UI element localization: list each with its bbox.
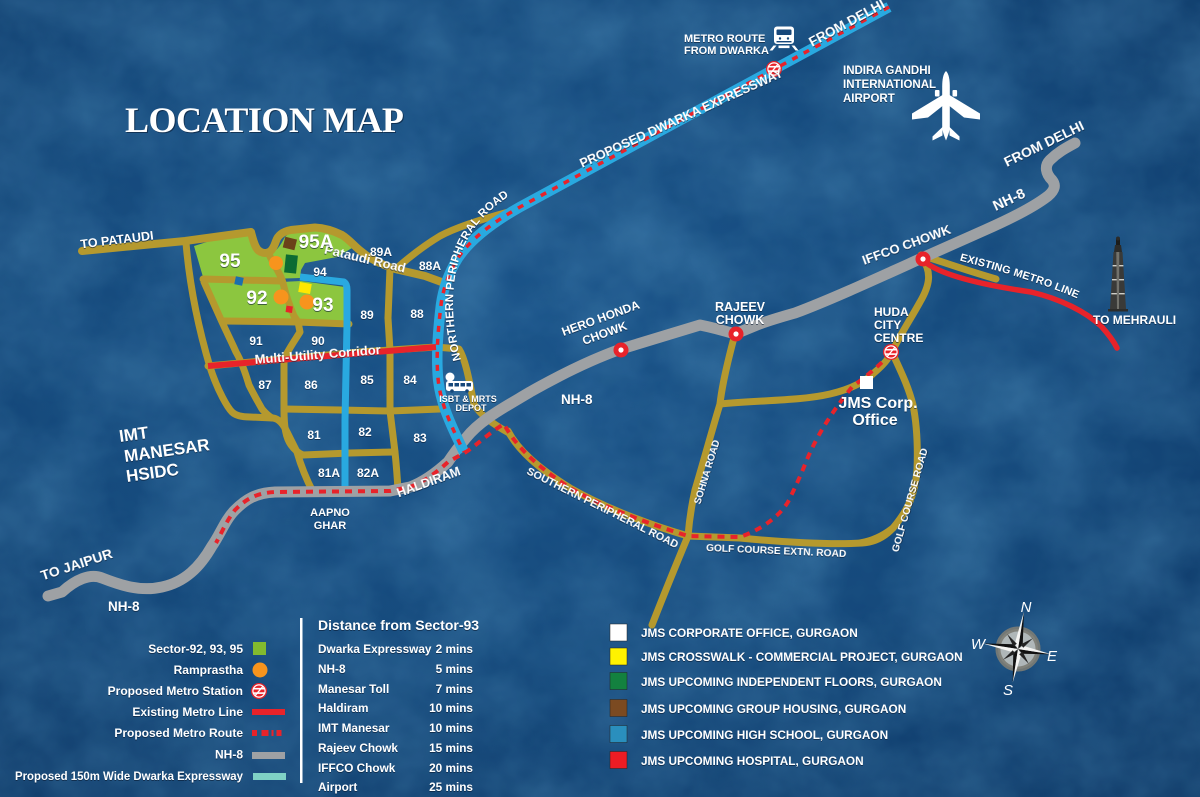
svg-text:Dwarka Expressway: Dwarka Expressway: [318, 642, 432, 656]
svg-text:10 mins: 10 mins: [429, 701, 473, 715]
svg-text:DEPOT: DEPOT: [455, 403, 487, 413]
svg-text:JMS CORPORATE OFFICE, GURGAON: JMS CORPORATE OFFICE, GURGAON: [641, 626, 858, 640]
svg-text:7 mins: 7 mins: [436, 682, 474, 696]
svg-text:15 mins: 15 mins: [429, 741, 473, 755]
svg-text:82A: 82A: [357, 466, 379, 480]
svg-text:INDIRA GANDHI: INDIRA GANDHI: [843, 65, 931, 77]
svg-text:87: 87: [258, 378, 272, 392]
svg-text:10 mins: 10 mins: [429, 721, 473, 735]
svg-text:92: 92: [246, 288, 267, 309]
svg-text:JMS UPCOMING HIGH SCHOOL, GURG: JMS UPCOMING HIGH SCHOOL, GURGAON: [641, 728, 888, 742]
svg-text:HUDA: HUDA: [874, 305, 909, 319]
svg-text:NH-8: NH-8: [215, 748, 243, 762]
svg-text:LOCATION MAP: LOCATION MAP: [125, 100, 403, 140]
svg-text:2 mins: 2 mins: [436, 642, 474, 656]
svg-text:Rajeev Chowk: Rajeev Chowk: [318, 741, 398, 755]
svg-text:FROM DWARKA: FROM DWARKA: [684, 45, 769, 57]
svg-text:RAJEEV: RAJEEV: [715, 300, 766, 314]
svg-text:E: E: [1047, 648, 1058, 665]
svg-text:95A: 95A: [299, 232, 334, 253]
svg-text:89A: 89A: [370, 245, 392, 259]
svg-text:Office: Office: [852, 412, 897, 429]
svg-text:Ramprastha: Ramprastha: [174, 663, 244, 677]
svg-text:81: 81: [307, 428, 321, 442]
svg-text:89: 89: [360, 308, 374, 322]
svg-text:CITY: CITY: [874, 318, 901, 332]
svg-text:Proposed Metro Station: Proposed Metro Station: [108, 684, 243, 698]
svg-text:NH-8: NH-8: [108, 599, 140, 614]
svg-text:95: 95: [219, 251, 241, 272]
svg-text:JMS CROSSWALK - COMMERCIAL PRO: JMS CROSSWALK - COMMERCIAL PROJECT, GURG…: [641, 650, 963, 664]
svg-text:81A: 81A: [318, 466, 340, 480]
svg-text:Existing Metro Line: Existing Metro Line: [132, 705, 243, 719]
svg-text:CHOWK: CHOWK: [716, 313, 765, 327]
svg-text:METRO ROUTE: METRO ROUTE: [684, 33, 765, 45]
svg-text:W: W: [971, 636, 987, 653]
svg-text:N: N: [1021, 599, 1032, 616]
svg-text:JMS UPCOMING INDEPENDENT FLOOR: JMS UPCOMING INDEPENDENT FLOORS, GURGAON: [641, 675, 942, 689]
svg-text:IFFCO Chowk: IFFCO Chowk: [318, 761, 396, 775]
svg-text:88: 88: [410, 307, 424, 321]
svg-text:Sector-92, 93, 95: Sector-92, 93, 95: [148, 642, 243, 656]
svg-text:Airport: Airport: [318, 780, 357, 794]
svg-text:90: 90: [311, 334, 325, 348]
svg-text:Manesar Toll: Manesar Toll: [318, 682, 389, 696]
svg-text:Proposed 150m Wide Dwarka Expr: Proposed 150m Wide Dwarka Expressway: [15, 769, 243, 783]
svg-text:86: 86: [304, 378, 318, 392]
svg-text:20 mins: 20 mins: [429, 761, 473, 775]
svg-text:Haldiram: Haldiram: [318, 701, 368, 715]
svg-text:JMS UPCOMING GROUP HOUSING, GU: JMS UPCOMING GROUP HOUSING, GURGAON: [641, 702, 906, 716]
svg-text:93: 93: [312, 295, 333, 316]
svg-text:CENTRE: CENTRE: [874, 331, 923, 345]
svg-text:85: 85: [360, 373, 374, 387]
svg-text:88A: 88A: [419, 259, 441, 273]
svg-text:INTERNATIONAL: INTERNATIONAL: [843, 79, 936, 91]
svg-text:83: 83: [413, 431, 427, 445]
svg-text:JMS UPCOMING HOSPITAL, GURGAON: JMS UPCOMING HOSPITAL, GURGAON: [641, 754, 864, 768]
svg-text:82: 82: [358, 425, 372, 439]
svg-text:AAPNO: AAPNO: [310, 507, 350, 519]
svg-text:GHAR: GHAR: [314, 520, 346, 532]
svg-text:S: S: [1003, 682, 1013, 699]
svg-text:IMT Manesar: IMT Manesar: [318, 721, 390, 735]
svg-text:5 mins: 5 mins: [436, 662, 474, 676]
svg-text:NH-8: NH-8: [318, 662, 346, 676]
svg-text:JMS Corp.: JMS Corp.: [838, 395, 917, 412]
svg-text:91: 91: [249, 334, 263, 348]
svg-text:Proposed Metro Route: Proposed Metro Route: [114, 726, 243, 740]
svg-text:Distance from Sector-93: Distance from Sector-93: [318, 617, 479, 633]
svg-text:25 mins: 25 mins: [429, 780, 473, 794]
svg-text:TO MEHRAULI: TO MEHRAULI: [1093, 313, 1176, 327]
svg-text:94: 94: [313, 265, 327, 279]
svg-text:84: 84: [403, 373, 417, 387]
svg-text:AIRPORT: AIRPORT: [843, 93, 895, 105]
svg-text:NH-8: NH-8: [561, 392, 593, 407]
